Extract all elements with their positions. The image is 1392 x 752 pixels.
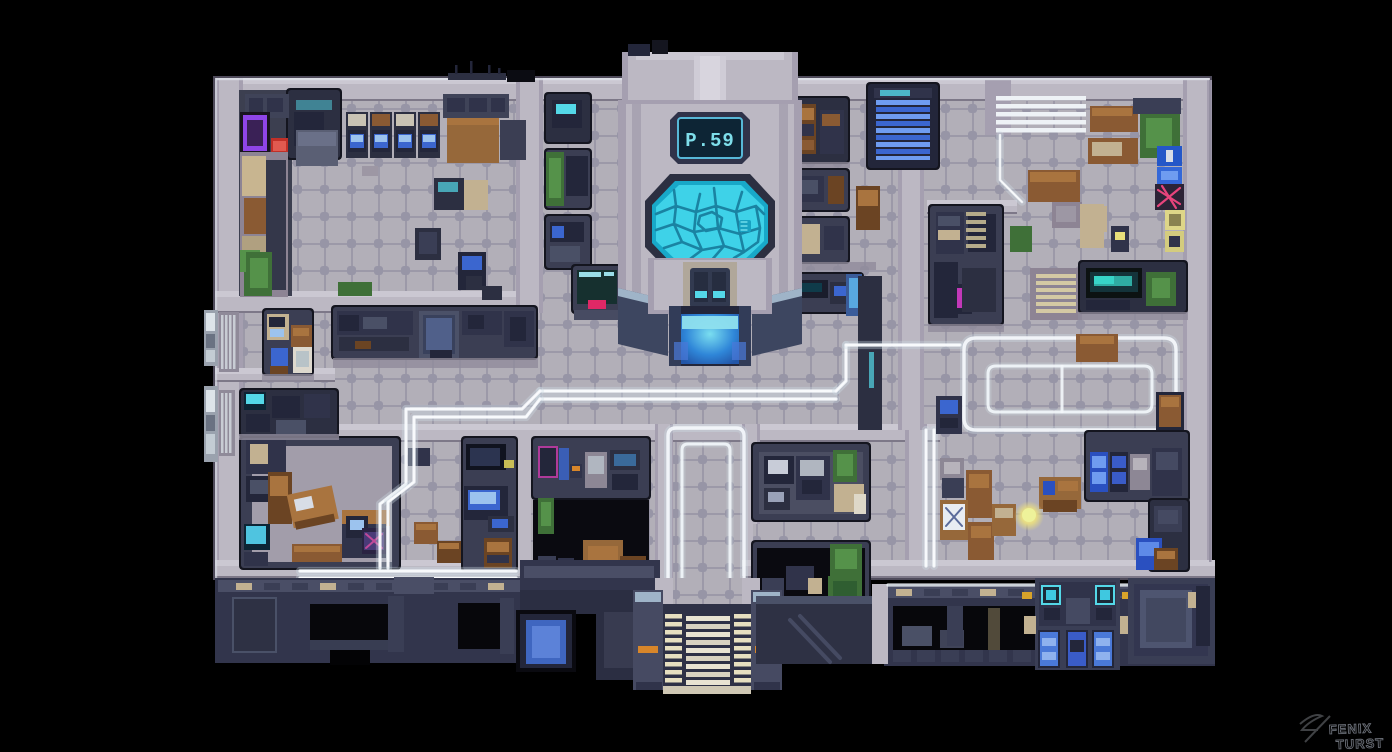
svg-text:FENIX: FENIX	[1329, 720, 1373, 737]
svg-text:TURST: TURST	[1336, 735, 1385, 752]
svg-text:P.59: P.59	[685, 130, 735, 152]
